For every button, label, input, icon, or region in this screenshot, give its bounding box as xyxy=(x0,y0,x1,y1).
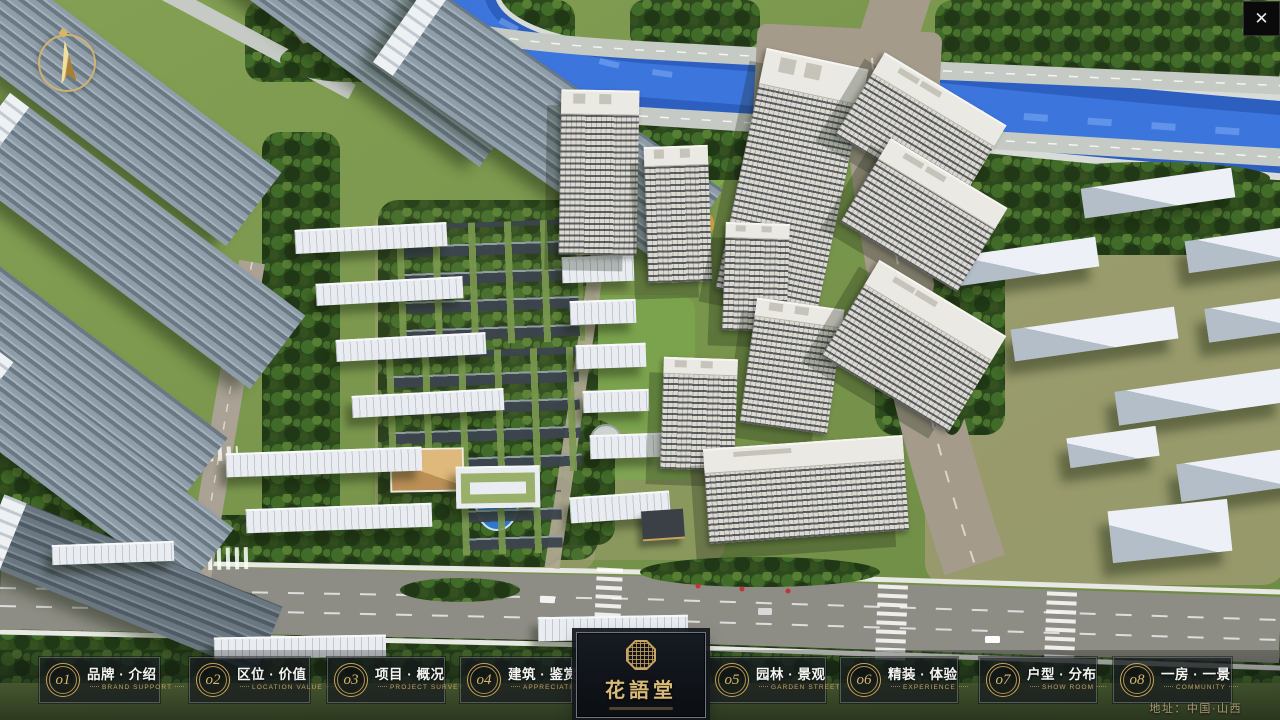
nav-item-architecture[interactable]: o4 建筑 · 鉴赏 APPRECIATION xyxy=(460,657,572,703)
nav-item-label: 区位 · 价值 xyxy=(237,668,303,682)
nav-item-sublabel: SHOW ROOM xyxy=(1027,685,1090,692)
nav-item-sublabel: GARDEN STREET xyxy=(756,685,819,692)
nav-item-garden-landscape[interactable]: o5 园林 · 景观 GARDEN STREET xyxy=(708,657,826,703)
tower-building xyxy=(740,297,845,434)
nav-item-label: 建筑 · 鉴赏 xyxy=(508,668,565,682)
project-logo-title: 花語堂 xyxy=(605,674,677,703)
apartment-bar xyxy=(562,255,635,283)
apartment-bar xyxy=(583,389,650,413)
nav-item-number-badge: o1 xyxy=(46,663,80,697)
nav-item-number-badge: o7 xyxy=(986,663,1020,697)
nav-item-sublabel: PROJECT SURVEY xyxy=(375,685,438,692)
tower-building xyxy=(644,145,713,283)
project-logo[interactable]: 花語堂 xyxy=(576,632,706,718)
nav-item-sublabel: LOCATION VALUE xyxy=(237,685,303,692)
nav-item-label: 项目 · 概况 xyxy=(375,668,438,682)
apartment-bar xyxy=(590,433,663,459)
apartment-bar xyxy=(570,299,637,325)
nav-item-room-view[interactable]: o8 一房 · 一景 COMMUNITY xyxy=(1113,657,1232,703)
nav-item-number-badge: o5 xyxy=(715,663,749,697)
nav-item-number-badge: o6 xyxy=(847,663,881,697)
nav-item-project-survey[interactable]: o3 项目 · 概况 PROJECT SURVEY xyxy=(327,657,445,703)
nav-item-number-badge: o4 xyxy=(467,663,501,697)
nav-item-label: 一房 · 一景 xyxy=(1161,668,1225,682)
nav-item-number-badge: o8 xyxy=(1120,663,1154,697)
close-icon: ✕ xyxy=(1254,9,1268,29)
logo-seal-icon xyxy=(626,640,656,670)
nav-item-sublabel: COMMUNITY xyxy=(1161,685,1225,692)
project-address: 地址：中国·山西 xyxy=(1149,700,1242,716)
nav-item-floorplan[interactable]: o7 户型 · 分布 SHOW ROOM xyxy=(979,657,1097,703)
tower-building xyxy=(559,89,640,255)
nav-item-sublabel: APPRECIATION xyxy=(508,685,565,692)
nav-item-number-badge: o2 xyxy=(196,663,230,697)
nav-item-label: 园林 · 景观 xyxy=(756,668,819,682)
nav-item-label: 品牌 · 介绍 xyxy=(87,668,153,682)
nav-item-finishing-experience[interactable]: o6 精装 · 体验 EXPERIENCE xyxy=(840,657,958,703)
tower-building xyxy=(703,435,909,544)
nav-item-label: 户型 · 分布 xyxy=(1027,668,1090,682)
nav-item-label: 精装 · 体验 xyxy=(888,668,951,682)
courtyard-building xyxy=(456,465,541,508)
entrance-gate xyxy=(641,509,685,542)
sales-presentation-viewer: ✕ o1 品牌 · 介绍 BRAND SUPPORT o2 区位 · 价值 LO… xyxy=(0,0,1280,720)
close-button[interactable]: ✕ xyxy=(1243,1,1280,36)
nav-item-sublabel: BRAND SUPPORT xyxy=(87,685,153,692)
nav-item-number-badge: o3 xyxy=(334,663,368,697)
compass-needle xyxy=(52,39,83,89)
apartment-bar xyxy=(576,343,647,369)
nav-item-brand-intro[interactable]: o1 品牌 · 介绍 BRAND SUPPORT xyxy=(39,657,160,703)
project-logo-subtitle xyxy=(609,707,673,710)
nav-item-sublabel: EXPERIENCE xyxy=(888,685,951,692)
apartment-bar xyxy=(52,541,175,565)
nav-item-location-value[interactable]: o2 区位 · 价值 LOCATION VALUE xyxy=(189,657,310,703)
